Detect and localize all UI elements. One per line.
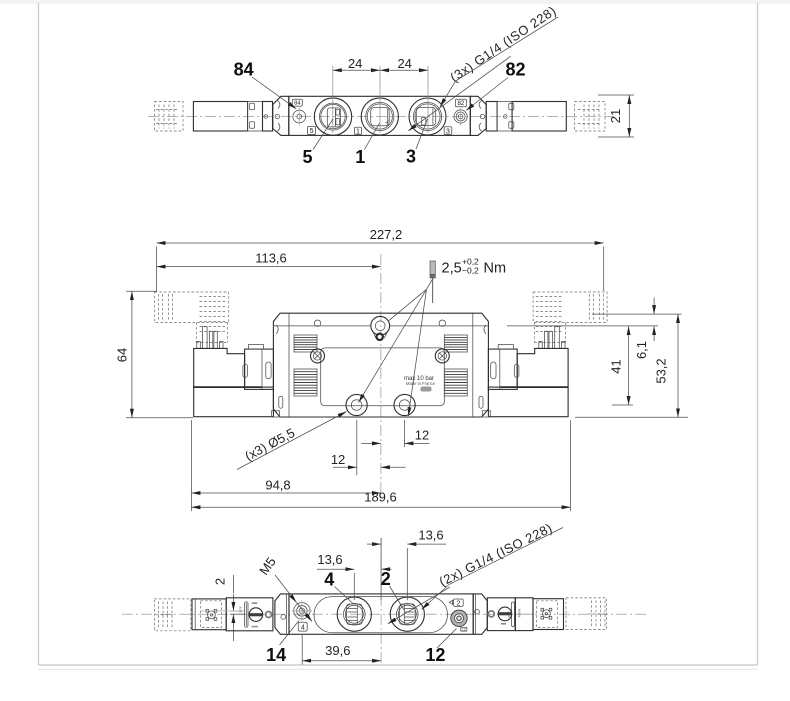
svg-text:41: 41 — [609, 359, 624, 373]
svg-text:AWIA: AWIA — [518, 608, 522, 617]
svg-text:227,2: 227,2 — [370, 227, 403, 242]
svg-text:84: 84 — [234, 60, 254, 80]
svg-text:12: 12 — [331, 452, 345, 467]
svg-text:82: 82 — [505, 60, 525, 80]
svg-text:2: 2 — [213, 578, 228, 585]
svg-text:21: 21 — [608, 109, 623, 123]
svg-text:12: 12 — [425, 645, 445, 665]
svg-text:4: 4 — [301, 625, 305, 632]
svg-text:−0,2: −0,2 — [462, 266, 479, 276]
svg-text:64: 64 — [115, 348, 130, 362]
svg-text:24: 24 — [348, 56, 362, 71]
svg-text:4: 4 — [324, 570, 334, 590]
svg-text:3: 3 — [406, 147, 416, 167]
svg-text:189,6: 189,6 — [364, 490, 397, 505]
svg-text:Made in France: Made in France — [406, 381, 436, 386]
svg-text:12: 12 — [462, 628, 466, 632]
svg-text:14: 14 — [266, 645, 286, 665]
svg-text:2: 2 — [381, 569, 391, 589]
svg-text:12: 12 — [415, 428, 429, 443]
svg-text:5: 5 — [302, 147, 312, 167]
svg-text:39,6: 39,6 — [325, 643, 350, 658]
svg-text:94,8: 94,8 — [265, 478, 290, 493]
svg-text:5: 5 — [310, 128, 314, 135]
svg-text:2,5: 2,5 — [442, 261, 462, 277]
svg-text:mini: mini — [239, 606, 243, 613]
svg-text:1: 1 — [356, 129, 360, 136]
svg-text:6,1: 6,1 — [634, 341, 649, 359]
svg-text:24: 24 — [397, 56, 411, 71]
svg-text:53,2: 53,2 — [654, 358, 669, 383]
svg-text:13,6: 13,6 — [418, 528, 443, 543]
svg-text:84: 84 — [294, 101, 301, 107]
svg-text:Nm: Nm — [484, 261, 507, 277]
svg-text:113,6: 113,6 — [255, 251, 287, 266]
svg-text:82: 82 — [457, 100, 464, 107]
svg-text:1: 1 — [355, 147, 365, 167]
svg-text:2: 2 — [456, 600, 460, 607]
svg-text:3: 3 — [446, 128, 450, 135]
svg-text:13,6: 13,6 — [317, 552, 342, 567]
